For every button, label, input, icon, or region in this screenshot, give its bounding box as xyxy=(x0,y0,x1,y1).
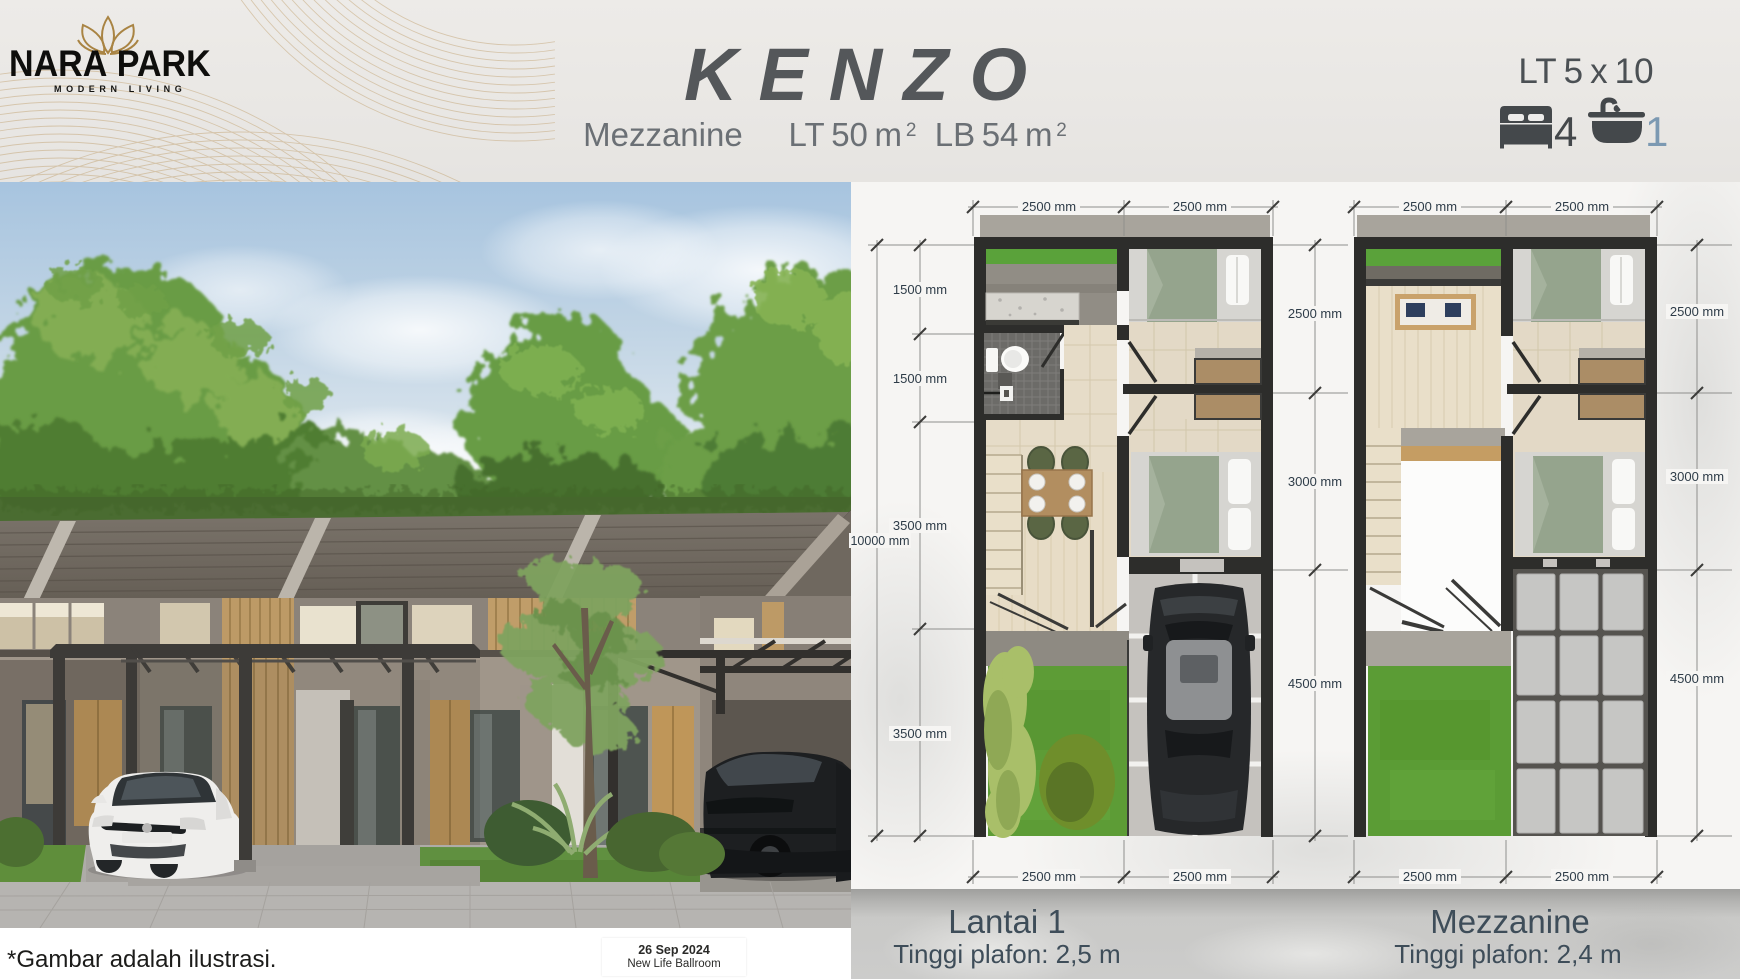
svg-text:2500 mm: 2500 mm xyxy=(1670,304,1724,319)
svg-text:3500 mm: 3500 mm xyxy=(893,518,947,533)
svg-text:4500 mm: 4500 mm xyxy=(1670,671,1724,686)
svg-text:3500 mm: 3500 mm xyxy=(893,726,947,741)
svg-text:2500 mm: 2500 mm xyxy=(1555,869,1609,884)
svg-text:2500 mm: 2500 mm xyxy=(1173,869,1227,884)
svg-text:4: 4 xyxy=(1554,108,1577,155)
svg-text:10000 mm: 10000 mm xyxy=(850,534,909,548)
svg-text:1500 mm: 1500 mm xyxy=(893,371,947,386)
svg-text:2500 mm: 2500 mm xyxy=(1288,306,1342,321)
svg-text:2500 mm: 2500 mm xyxy=(1022,869,1076,884)
svg-text:4500 mm: 4500 mm xyxy=(1288,676,1342,691)
svg-text:2500 mm: 2500 mm xyxy=(1173,199,1227,214)
svg-text:1500 mm: 1500 mm xyxy=(893,282,947,297)
svg-text:2500 mm: 2500 mm xyxy=(1022,199,1076,214)
svg-text:2500 mm: 2500 mm xyxy=(1403,199,1457,214)
svg-text:1: 1 xyxy=(1645,108,1668,155)
svg-text:3000 mm: 3000 mm xyxy=(1288,474,1342,489)
svg-text:2500 mm: 2500 mm xyxy=(1555,199,1609,214)
svg-text:3000 mm: 3000 mm xyxy=(1670,469,1724,484)
svg-text:2500 mm: 2500 mm xyxy=(1403,869,1457,884)
